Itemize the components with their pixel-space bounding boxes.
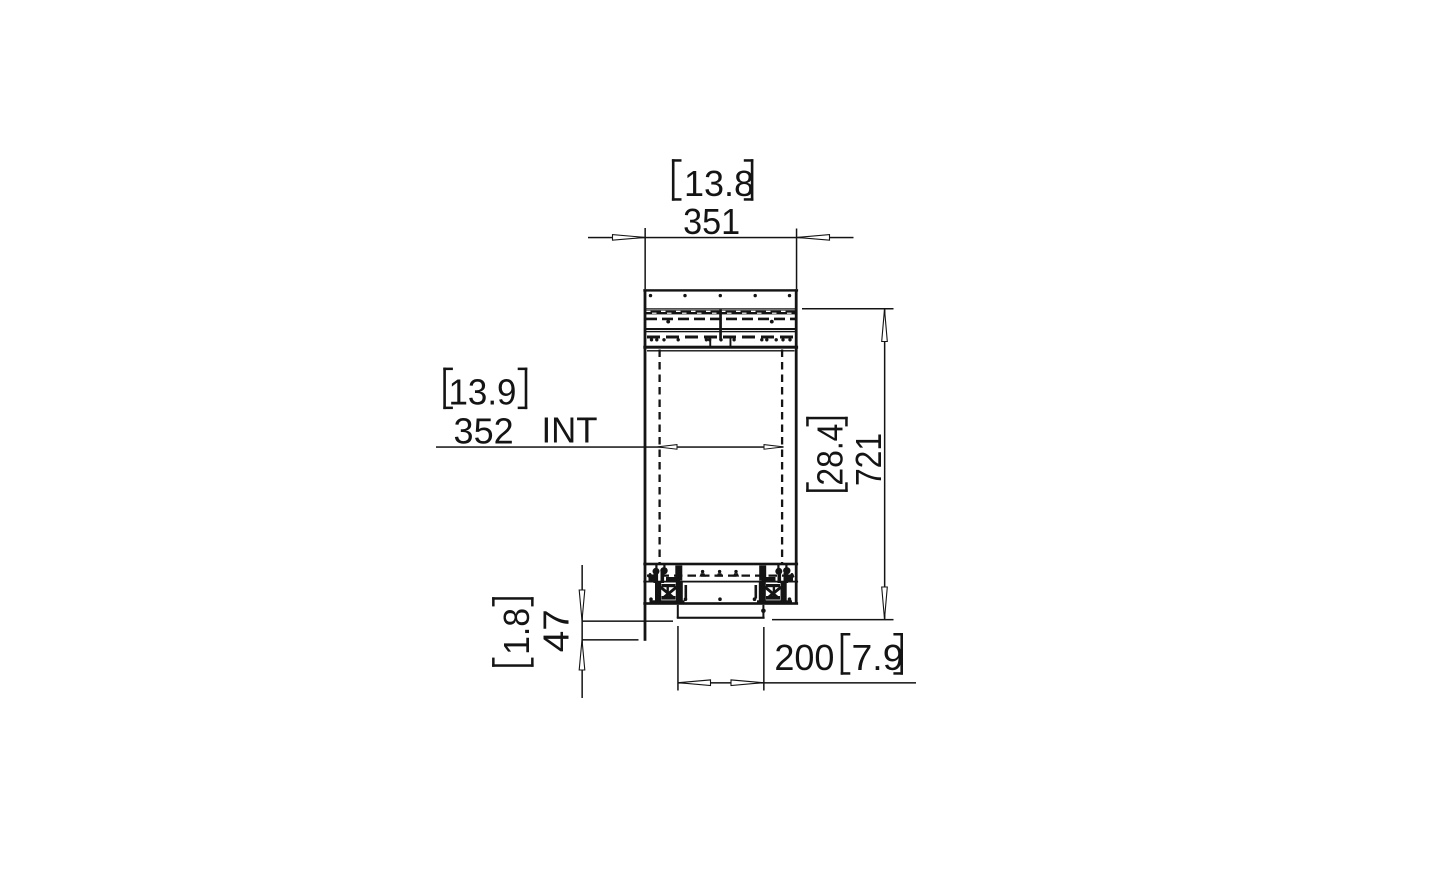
svg-text:7.9: 7.9: [852, 637, 904, 678]
svg-text:721: 721: [848, 433, 889, 486]
svg-text:13.8: 13.8: [684, 163, 754, 204]
svg-text:INT: INT: [542, 410, 598, 451]
svg-text:352: 352: [454, 411, 514, 452]
svg-text:13.9: 13.9: [449, 372, 517, 413]
svg-text:200: 200: [774, 637, 834, 678]
svg-text:47: 47: [536, 609, 577, 652]
svg-text:28.4: 28.4: [810, 424, 851, 486]
svg-text:1.8: 1.8: [496, 608, 537, 655]
svg-text:351: 351: [683, 201, 740, 242]
